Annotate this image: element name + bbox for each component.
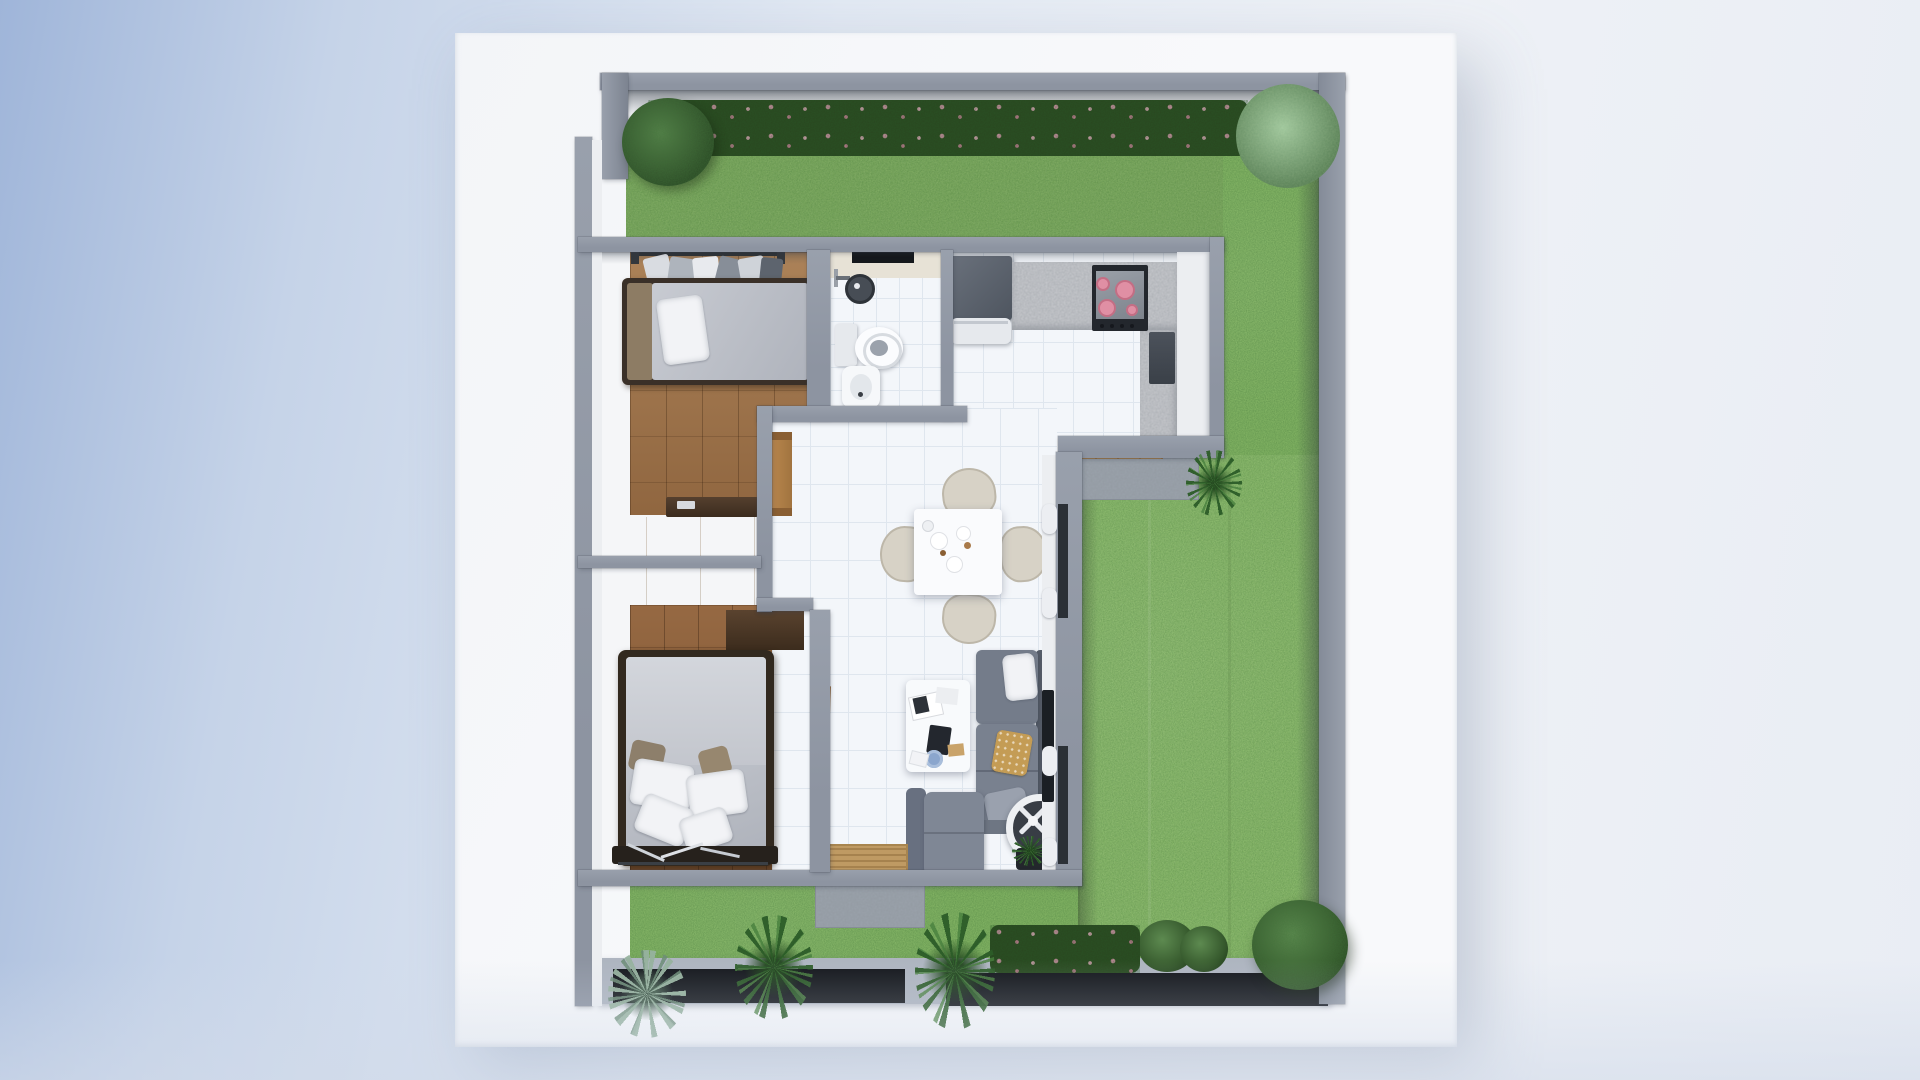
burner-icon xyxy=(1115,280,1135,300)
bed1-pillow xyxy=(656,294,711,366)
bed1-blanket xyxy=(627,283,653,380)
front-fence-panel-right xyxy=(946,973,1328,1006)
armchair-seat xyxy=(924,792,984,876)
top-lawn xyxy=(626,146,1322,246)
closet1-floor xyxy=(592,517,756,556)
kitchen-wall-right xyxy=(1210,237,1224,455)
jug xyxy=(922,520,934,532)
sofa-mustard-pillow xyxy=(991,729,1034,777)
tree-top-right xyxy=(1236,84,1340,188)
cooktop-knobs xyxy=(1100,324,1104,328)
magazine-cover xyxy=(912,696,929,715)
curtain xyxy=(1042,746,1057,776)
base-cabinet xyxy=(1149,332,1175,384)
right-lawn xyxy=(1078,455,1319,975)
plate xyxy=(956,526,971,541)
site-wall-right xyxy=(1319,73,1345,1004)
armchair-seam xyxy=(924,832,984,834)
fan-hub xyxy=(1028,816,1038,826)
lawn-mow-line xyxy=(1148,455,1151,975)
curtain xyxy=(1042,588,1057,618)
wall-bathroom-kitchen xyxy=(941,250,953,418)
house-wall-top xyxy=(578,237,1224,252)
entry-concrete-pad xyxy=(815,882,925,928)
site-plot-base xyxy=(455,33,1457,1047)
bidet-drain xyxy=(858,392,863,397)
bench-rack-bar xyxy=(618,862,768,865)
wall-bathroom-bottom xyxy=(757,406,967,422)
floor-plan-render xyxy=(0,0,1920,1080)
bottom-right-big-bush xyxy=(1252,900,1348,990)
wall-bedroom2-living xyxy=(810,610,830,872)
shower-head-icon xyxy=(845,274,875,304)
burner-icon xyxy=(1096,277,1110,291)
closet2-floor xyxy=(592,568,756,605)
top-flower-hedge xyxy=(648,100,1248,156)
front-palm-right xyxy=(915,912,995,1030)
photo xyxy=(947,743,964,757)
pastry xyxy=(964,542,971,549)
toilet-drain xyxy=(870,340,888,356)
right-wall-inner-shadow xyxy=(1297,90,1319,980)
front-flower-hedge xyxy=(990,925,1140,973)
curtain xyxy=(1042,838,1057,866)
wall-bedroom1-bathroom xyxy=(807,250,830,418)
front-fence-panel-left xyxy=(613,969,905,1003)
bedroom2-corner-shelf xyxy=(726,610,804,650)
shower-head-center xyxy=(854,283,860,289)
curtain xyxy=(1042,504,1057,534)
toilet-tank xyxy=(835,324,857,366)
tree-top-left xyxy=(622,98,714,186)
paper xyxy=(935,687,959,705)
ceiling-vent-icon xyxy=(852,252,914,263)
kitchen-right-wall-face xyxy=(1177,252,1210,438)
plate xyxy=(930,532,948,550)
dresser-item xyxy=(677,501,695,509)
refrigerator xyxy=(948,256,1012,320)
agave-plant xyxy=(608,950,686,1038)
bottom-right-bush-small xyxy=(1180,926,1228,972)
front-palm-left xyxy=(735,915,813,1020)
wall-hallway xyxy=(757,406,772,612)
patio-palm xyxy=(1186,450,1242,516)
house-wall-bottom xyxy=(578,870,1082,886)
sofa-white-pillow xyxy=(1002,652,1039,701)
burner-icon xyxy=(1098,299,1116,317)
front-curb xyxy=(598,958,1332,1004)
window-right-lower xyxy=(1058,746,1068,864)
site-wall-top xyxy=(600,73,1345,90)
burner-icon xyxy=(1126,304,1138,316)
pastry xyxy=(940,550,946,556)
dishwasher-handle xyxy=(954,321,1008,324)
lawn-mow-line xyxy=(1228,455,1231,975)
wall-bedroom-divider xyxy=(578,556,761,568)
wall-bedroom2-stub xyxy=(757,598,813,611)
armchair-back xyxy=(906,788,926,878)
plate xyxy=(946,556,963,573)
window-right-upper xyxy=(1058,504,1068,618)
